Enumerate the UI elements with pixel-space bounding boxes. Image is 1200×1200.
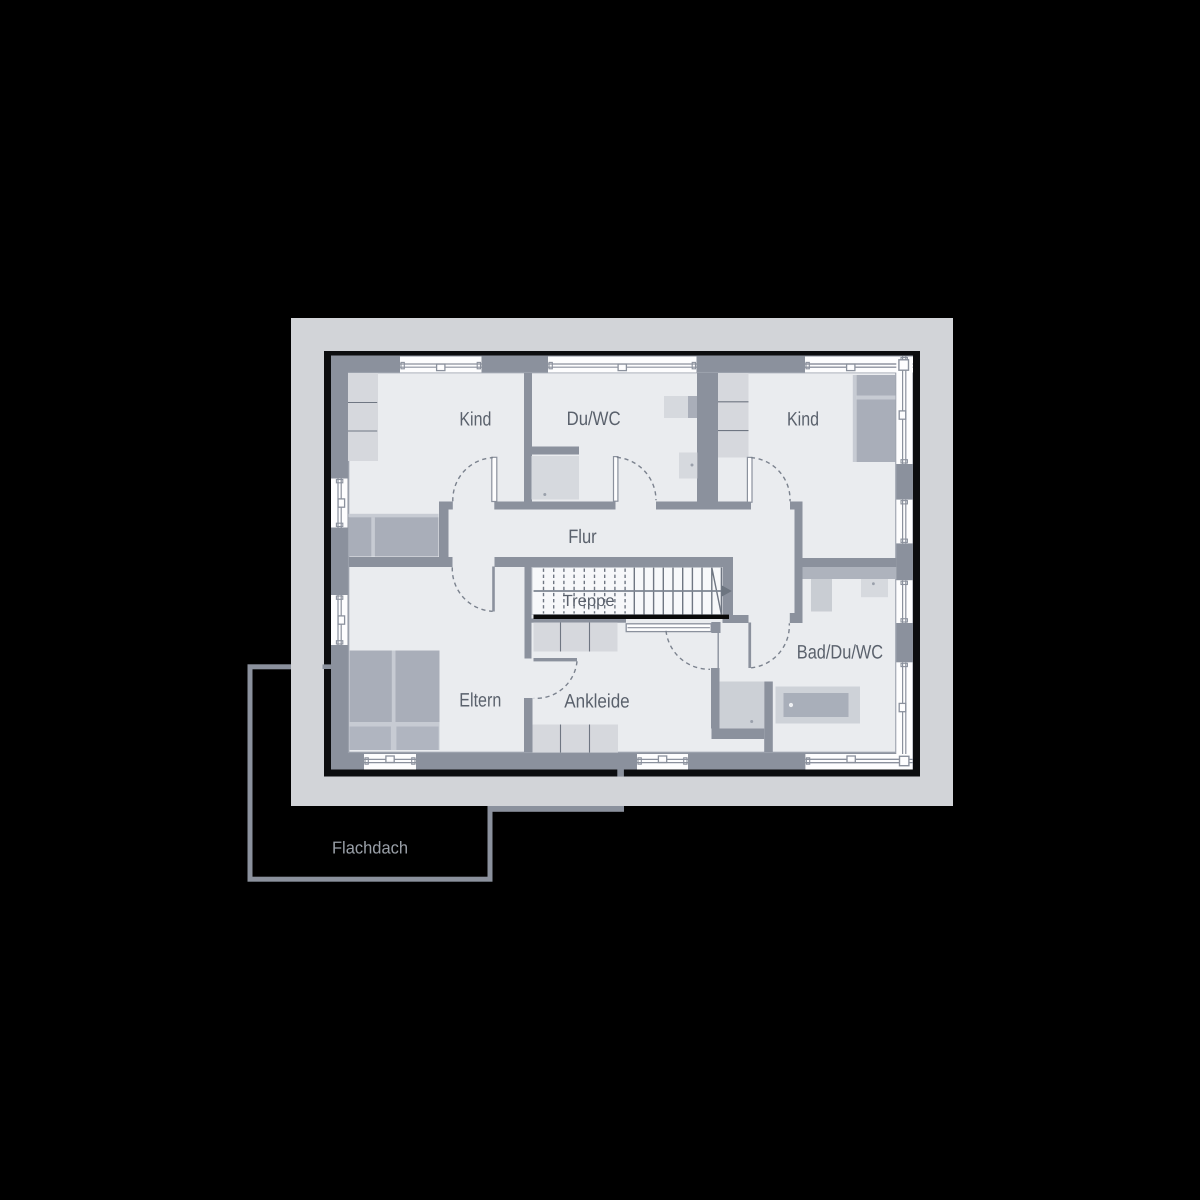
svg-text:Kind: Kind (787, 408, 819, 430)
svg-text:Ankleide: Ankleide (564, 690, 630, 712)
svg-text:Bad/Du/WC: Bad/Du/WC (797, 642, 883, 664)
svg-text:Treppe: Treppe (563, 592, 615, 610)
svg-text:Flur: Flur (568, 526, 597, 548)
svg-text:Kind: Kind (459, 408, 491, 430)
svg-text:Eltern: Eltern (459, 690, 501, 712)
svg-text:Du/WC: Du/WC (567, 408, 621, 430)
svg-text:Flachdach: Flachdach (332, 837, 408, 857)
